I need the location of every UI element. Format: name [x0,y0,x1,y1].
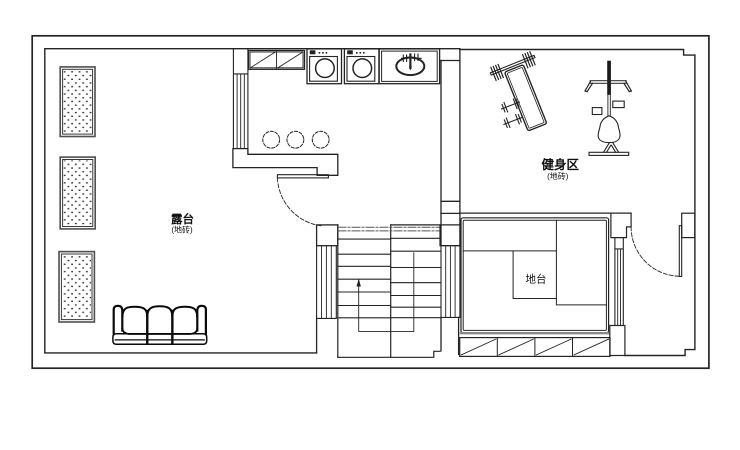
svg-text:(地砖): (地砖) [547,171,569,181]
svg-text:露台: 露台 [171,212,194,226]
svg-text:(地砖): (地砖) [171,225,193,235]
svg-text:健身区: 健身区 [542,157,580,172]
svg-text:地台: 地台 [526,273,547,286]
